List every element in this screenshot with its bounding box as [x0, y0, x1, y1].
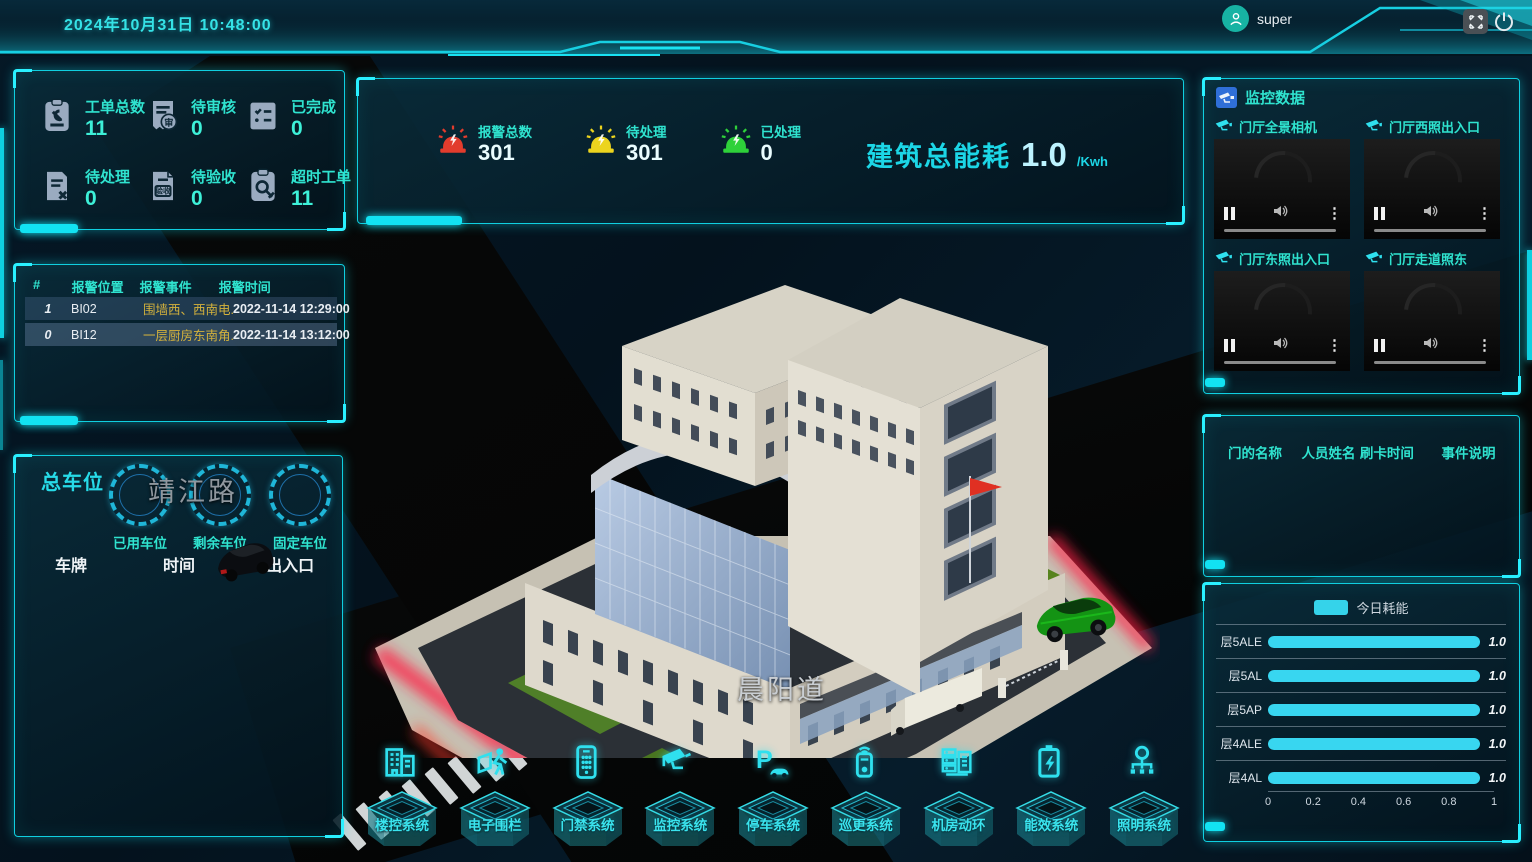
bar-value-label: 1.0 — [1480, 771, 1506, 785]
bar-track — [1268, 704, 1480, 716]
bar-category-label: 层4AL — [1216, 769, 1262, 786]
workorder-label: 待处理 — [85, 166, 130, 187]
system-item[interactable]: 门禁系统 — [544, 742, 632, 860]
chart-bar-row: 层5AP 1.0 — [1216, 692, 1506, 726]
fullscreen-icon — [1469, 15, 1483, 29]
monitor-camera-icon — [1216, 87, 1237, 108]
bar-value-label: 1.0 — [1480, 669, 1506, 683]
bar-fill — [1268, 670, 1480, 682]
volume-button[interactable] — [1423, 204, 1439, 223]
user-avatar-icon — [1222, 5, 1249, 32]
chart-legend: 今日耗能 — [1204, 598, 1519, 617]
alarm-no: 1 — [25, 302, 71, 316]
alarm-stats-panel: 报警总数 301 待处理 301 已处理 0 建筑总能耗 1.0 /Kwh — [357, 78, 1184, 224]
gauge-label: 已用车位 — [113, 532, 167, 552]
panel-tab — [20, 224, 78, 233]
axis-tick-label: 0 — [1265, 796, 1271, 808]
chart-bar-row: 层5AL 1.0 — [1216, 658, 1506, 692]
bar-track — [1268, 738, 1480, 750]
system-label: 门禁系统 — [544, 814, 632, 834]
alarm-stat: 待处理 301 — [584, 121, 667, 164]
workorder-stat: 验收 待验收 0 — [143, 155, 243, 221]
chart-x-axis: 00.20.40.60.81 — [1268, 791, 1494, 810]
door-table-header: 门的名称人员姓名刷卡时间事件说明 — [1228, 442, 1498, 462]
workorder-stat: 超时工单 11 — [243, 155, 343, 221]
system-item[interactable]: 能效系统 — [1007, 742, 1095, 860]
video-progress-bar[interactable] — [1374, 229, 1486, 232]
video-menu-button[interactable]: ⋮ — [1477, 207, 1492, 220]
video-menu-button[interactable]: ⋮ — [1327, 339, 1342, 352]
bar-fill — [1268, 704, 1480, 716]
video-menu-button[interactable]: ⋮ — [1477, 339, 1492, 352]
camera-cell: 门厅全景相机 ⋮ — [1214, 113, 1364, 245]
stat-value: 301 — [626, 141, 667, 164]
video-menu-button[interactable]: ⋮ — [1327, 207, 1342, 220]
top-header: 2024年10月31日 10:48:00 super — [0, 0, 1532, 56]
axis-tick-label: 0.8 — [1441, 796, 1456, 808]
system-item[interactable]: 监控系统 — [636, 742, 724, 860]
stat-value: 0 — [761, 141, 802, 164]
power-icon — [1492, 10, 1516, 34]
power-button[interactable] — [1492, 10, 1516, 34]
system-label: 楼控系统 — [358, 814, 446, 834]
workorder-stat: 审 待审核 0 — [143, 85, 243, 151]
edge-accent-right — [1527, 250, 1532, 360]
column-header: 事件说明 — [1441, 442, 1498, 462]
panel-tab — [20, 416, 78, 425]
gauge-label: 固定车位 — [273, 532, 327, 552]
cctv-icon — [658, 742, 702, 786]
column-header: 报警时间 — [219, 277, 329, 296]
chart-bars: 层5ALE 1.0 层5AL 1.0 层5AP 1.0 层4ALE 1.0 层4… — [1216, 624, 1506, 794]
patrol-icon — [844, 742, 888, 786]
column-header: 报警事件 — [140, 277, 219, 296]
svg-text:验收: 验收 — [156, 186, 171, 195]
siren-icon — [584, 123, 618, 162]
bar-category-label: 层5AP — [1216, 701, 1262, 718]
bar-fill — [1268, 772, 1480, 784]
monitor-title: 监控数据 — [1245, 87, 1305, 108]
video-progress-bar[interactable] — [1224, 229, 1336, 232]
volume-button[interactable] — [1423, 336, 1439, 355]
workorder-stat: 已完成 0 — [243, 85, 343, 151]
workorder-value: 11 — [291, 187, 351, 210]
bar-category-label: 层5ALE — [1216, 633, 1262, 650]
alarm-time: 2022-11-14 12:29:00 — [233, 302, 333, 316]
doc-review-icon: 审 — [143, 96, 183, 141]
alarm-stat: 已处理 0 — [719, 121, 802, 164]
chart-bar-row: 层4AL 1.0 — [1216, 760, 1506, 794]
parking-table-header: 车牌时间出入口 — [55, 552, 325, 576]
workorder-stat: 待处理 0 — [37, 155, 143, 221]
bar-fill — [1268, 738, 1480, 750]
camera-icon — [1364, 114, 1383, 138]
bar-value-label: 1.0 — [1480, 635, 1506, 649]
legend-label: 今日耗能 — [1356, 598, 1408, 617]
energy-chart-panel: 今日耗能 层5ALE 1.0 层5AL 1.0 层5AP 1.0 层4ALE 1… — [1203, 583, 1520, 842]
axis-tick-label: 1 — [1491, 796, 1497, 808]
pause-button[interactable] — [1374, 339, 1385, 352]
energy-total: 建筑总能耗 1.0 /Kwh — [866, 135, 1108, 174]
video-progress-bar[interactable] — [1374, 361, 1486, 364]
stat-label: 报警总数 — [478, 121, 532, 141]
column-header: 门的名称 — [1228, 442, 1301, 462]
energy-label: 建筑总能耗 — [866, 135, 1011, 174]
column-header: 车牌 — [55, 552, 163, 576]
column-header: # — [33, 277, 72, 296]
car-black — [211, 534, 277, 586]
svg-text:审: 审 — [164, 117, 173, 128]
clipboard-search-icon — [243, 166, 283, 211]
alarm-location: BI12 — [71, 328, 143, 342]
stat-label: 已处理 — [761, 121, 802, 141]
alarm-event[interactable]: 围墙西、西南电... — [143, 299, 233, 318]
system-item[interactable]: 巡更系统 — [822, 742, 910, 860]
panel-tab — [1205, 378, 1225, 387]
door-events-panel: 门的名称人员姓名刷卡时间事件说明 — [1203, 415, 1520, 577]
alarm-stat: 报警总数 301 — [436, 121, 532, 164]
volume-button[interactable] — [1273, 204, 1289, 223]
system-label: 监控系统 — [636, 814, 724, 834]
system-label: 电子围栏 — [451, 814, 539, 834]
user-name: super — [1257, 11, 1292, 27]
street-label-chenyangdao: 晨阳道 — [737, 668, 827, 707]
axis-tick-label: 0.2 — [1306, 796, 1321, 808]
system-item[interactable]: 照明系统 — [1100, 742, 1188, 860]
system-item[interactable]: 机房动环 — [915, 742, 1003, 860]
bar-track — [1268, 772, 1480, 784]
axis-tick-label: 0.4 — [1351, 796, 1366, 808]
workorder-label: 已完成 — [291, 96, 336, 117]
workorder-value: 0 — [85, 187, 130, 210]
alarm-time: 2022-11-14 13:12:00 — [233, 328, 333, 342]
car-green — [1028, 586, 1120, 644]
edge-accent-left-2 — [0, 360, 3, 450]
system-label: 照明系统 — [1100, 814, 1188, 834]
camera-name: 门厅西照出入口 — [1389, 117, 1480, 136]
gauge-ring — [269, 464, 331, 526]
checklist-icon — [243, 96, 283, 141]
alarm-event[interactable]: 一层厨房东南角... — [143, 325, 233, 344]
stat-label: 待处理 — [626, 121, 667, 141]
datetime-display: 2024年10月31日 10:48:00 — [64, 11, 272, 35]
camera-icon — [1214, 114, 1233, 138]
video-player[interactable]: ⋮ — [1364, 271, 1500, 371]
system-item[interactable]: 电子围栏 — [451, 742, 539, 860]
doc-x-icon — [37, 166, 77, 211]
video-player[interactable]: ⋮ — [1214, 139, 1350, 239]
pause-button[interactable] — [1374, 207, 1385, 220]
alarm-table-row[interactable]: 1 BI02 围墙西、西南电... 2022-11-14 12:29:00 — [25, 297, 337, 320]
chart-bar-row: 层4ALE 1.0 — [1216, 726, 1506, 760]
doc-accept-icon: 验收 — [143, 166, 183, 211]
building-icon — [380, 742, 424, 786]
camera-cell: 门厅东照出入口 ⋮ — [1214, 245, 1364, 377]
system-label: 机房动环 — [915, 814, 1003, 834]
volume-button[interactable] — [1273, 336, 1289, 355]
alarm-location: BI02 — [71, 302, 143, 316]
pause-button[interactable] — [1224, 207, 1235, 220]
video-progress-bar[interactable] — [1224, 361, 1336, 364]
workorder-value: 11 — [85, 117, 145, 140]
alarm-no: 0 — [25, 328, 71, 342]
parking-icon: P — [751, 742, 795, 786]
workorder-stat: 工单总数 11 — [37, 85, 143, 151]
camera-icon — [1214, 246, 1233, 270]
svg-text:P: P — [756, 746, 773, 774]
systems-row: 楼控系统 电子围栏 — [358, 742, 1188, 860]
system-item[interactable]: P 停车系统 — [729, 742, 817, 860]
system-label: 停车系统 — [729, 814, 817, 834]
siren-icon — [436, 123, 470, 162]
camera-name: 门厅走道照东 — [1389, 249, 1467, 268]
workorder-value: 0 — [191, 187, 236, 210]
monitor-header: 监控数据 — [1216, 87, 1305, 108]
dashboard-root: 晨阳道 靖江路 2024年10月31日 10:48:00 super — [0, 0, 1532, 862]
workorder-label: 待审核 — [191, 96, 236, 117]
legend-swatch — [1314, 600, 1348, 615]
panel-tab — [1205, 822, 1225, 831]
energy-unit: /Kwh — [1077, 154, 1108, 169]
workorder-value: 0 — [291, 117, 336, 140]
keypad-icon — [566, 742, 610, 786]
bar-category-label: 层5AL — [1216, 667, 1262, 684]
edge-accent-left — [0, 128, 4, 338]
energy-value: 1.0 — [1021, 136, 1067, 174]
workorder-panel: 工单总数 11 审 待审核 0 已完成 0 待处理 0 验收 待验收 — [14, 70, 345, 230]
alarm-stats-row: 报警总数 301 待处理 301 已处理 0 — [436, 121, 801, 164]
camera-grid: 门厅全景相机 ⋮ 门厅西照出入口 — [1214, 113, 1514, 377]
camera-cell: 门厅西照出入口 ⋮ — [1364, 113, 1514, 245]
parking-panel: 总车位 已用车位 剩余车位 固定车位 车牌时间出入口 — [14, 455, 343, 837]
stat-value: 301 — [478, 141, 532, 164]
bar-value-label: 1.0 — [1480, 737, 1506, 751]
column-header: 报警位置 — [72, 277, 140, 296]
camera-name: 门厅全景相机 — [1239, 117, 1317, 136]
server-icon — [937, 742, 981, 786]
monitor-panel: 监控数据 门厅全景相机 ⋮ 门厅西照出入口 — [1203, 78, 1520, 394]
video-player[interactable]: ⋮ — [1214, 271, 1350, 371]
chart-bar-row: 层5ALE 1.0 — [1216, 624, 1506, 658]
workorder-grid: 工单总数 11 审 待审核 0 已完成 0 待处理 0 验收 待验收 — [37, 85, 343, 221]
camera-name: 门厅东照出入口 — [1239, 249, 1330, 268]
workorder-label: 超时工单 — [291, 166, 351, 187]
system-item[interactable]: 楼控系统 — [358, 742, 446, 860]
panel-tab — [366, 216, 462, 225]
user-menu[interactable]: super — [1222, 5, 1292, 32]
column-header: 人员姓名 — [1301, 442, 1359, 462]
siren-icon — [719, 123, 753, 162]
alarm-table-header: #报警位置报警事件报警时间 — [33, 277, 329, 296]
light-icon — [1122, 742, 1166, 786]
parking-gauge: 固定车位 — [271, 464, 329, 552]
panel-tab — [1205, 560, 1225, 569]
fence-icon — [473, 742, 517, 786]
workorder-label: 待验收 — [191, 166, 236, 187]
bar-value-label: 1.0 — [1480, 703, 1506, 717]
workorder-label: 工单总数 — [85, 96, 145, 117]
alarm-table-row[interactable]: 0 BI12 一层厨房东南角... 2022-11-14 13:12:00 — [25, 323, 337, 346]
video-player[interactable]: ⋮ — [1364, 139, 1500, 239]
system-label: 能效系统 — [1007, 814, 1095, 834]
bar-category-label: 层4ALE — [1216, 735, 1262, 752]
clipboard-wrench-icon — [37, 96, 77, 141]
energy-icon — [1029, 742, 1073, 786]
parking-title: 总车位 — [41, 466, 104, 495]
alarm-table-panel: #报警位置报警事件报警时间 1 BI02 围墙西、西南电... 2022-11-… — [14, 264, 345, 422]
fullscreen-button[interactable] — [1463, 9, 1488, 34]
column-header: 刷卡时间 — [1360, 442, 1432, 462]
bar-track — [1268, 636, 1480, 648]
pause-button[interactable] — [1224, 339, 1235, 352]
camera-icon — [1364, 246, 1383, 270]
bar-fill — [1268, 636, 1480, 648]
axis-tick-label: 0.6 — [1396, 796, 1411, 808]
camera-cell: 门厅走道照东 ⋮ — [1364, 245, 1514, 377]
alarm-table-body: 1 BI02 围墙西、西南电... 2022-11-14 12:29:00 0 … — [25, 297, 337, 349]
system-label: 巡更系统 — [822, 814, 910, 834]
workorder-value: 0 — [191, 117, 236, 140]
street-label-jingjianglu: 靖江路 — [148, 470, 238, 509]
bar-track — [1268, 670, 1480, 682]
